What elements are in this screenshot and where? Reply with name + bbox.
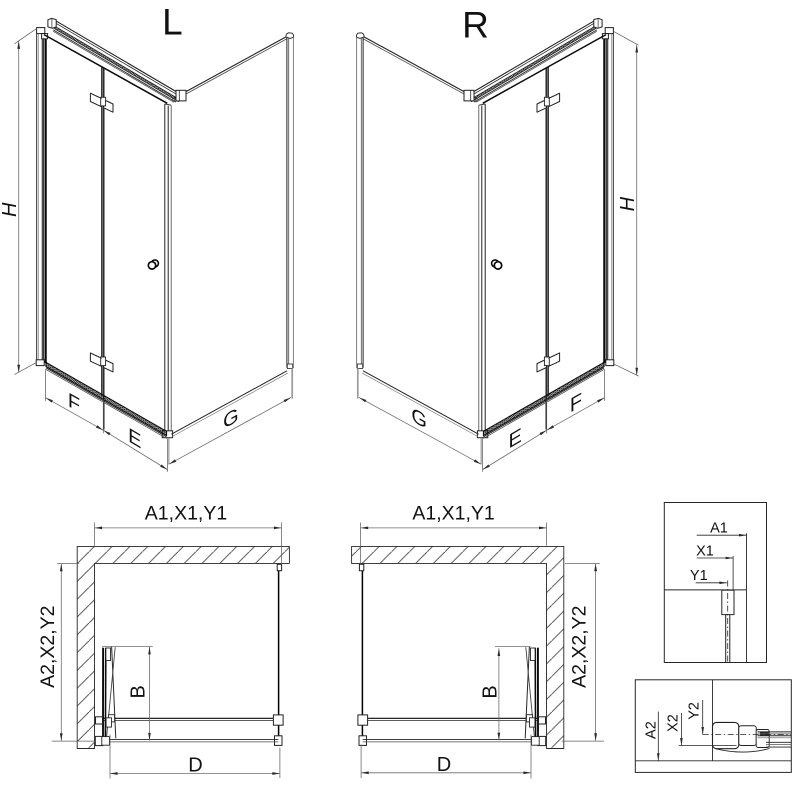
svg-text:L: L — [162, 2, 183, 43]
svg-text:A1: A1 — [710, 520, 728, 536]
svg-text:B: B — [480, 685, 502, 698]
svg-text:B: B — [127, 685, 149, 698]
svg-text:H: H — [0, 202, 21, 217]
svg-text:D: D — [437, 754, 451, 776]
svg-text:A1,X1,Y1: A1,X1,Y1 — [145, 503, 227, 525]
svg-text:D: D — [188, 755, 202, 777]
svg-text:R: R — [462, 5, 489, 46]
svg-text:A2: A2 — [644, 721, 660, 739]
svg-text:X2: X2 — [666, 714, 682, 732]
svg-text:A2,X2,Y2: A2,X2,Y2 — [37, 606, 59, 688]
svg-text:H: H — [617, 196, 639, 211]
svg-text:Y1: Y1 — [690, 568, 708, 584]
svg-text:Y2: Y2 — [687, 702, 703, 720]
svg-text:A1,X1,Y1: A1,X1,Y1 — [412, 503, 494, 525]
svg-text:A2,X2,Y2: A2,X2,Y2 — [569, 606, 591, 688]
svg-text:X1: X1 — [696, 544, 714, 560]
